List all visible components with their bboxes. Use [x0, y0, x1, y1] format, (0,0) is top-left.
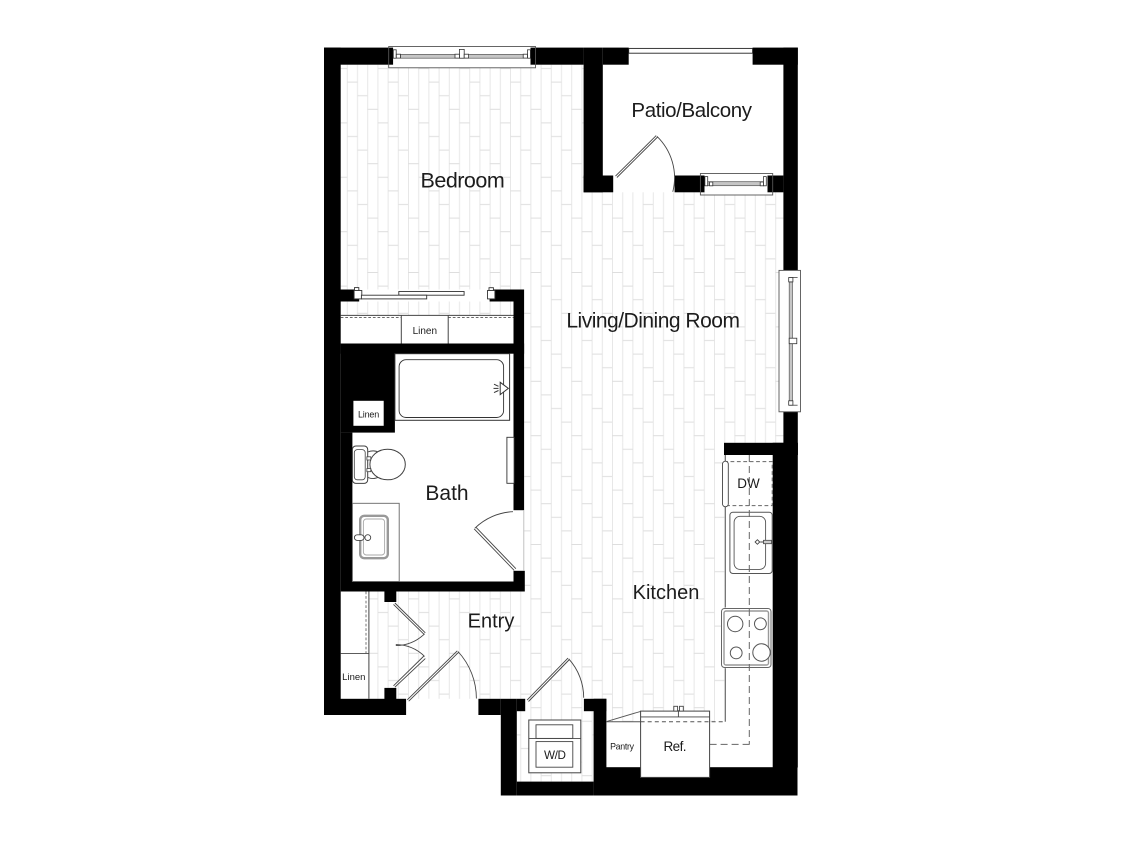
svg-text:Bedroom: Bedroom	[421, 169, 505, 193]
svg-text:Living/Dining Room: Living/Dining Room	[566, 310, 739, 333]
svg-text:Pantry: Pantry	[610, 742, 635, 752]
svg-text:Kitchen: Kitchen	[633, 582, 700, 604]
svg-text:W/D: W/D	[544, 749, 566, 762]
svg-text:Ref.: Ref.	[664, 739, 686, 754]
svg-text:DW: DW	[737, 476, 760, 491]
svg-text:Patio/Balcony: Patio/Balcony	[631, 99, 752, 122]
svg-text:Linen: Linen	[342, 672, 365, 683]
svg-text:Bath: Bath	[425, 482, 468, 505]
svg-text:Linen: Linen	[358, 410, 379, 420]
svg-text:Entry: Entry	[468, 611, 515, 633]
svg-text:Linen: Linen	[413, 326, 437, 337]
